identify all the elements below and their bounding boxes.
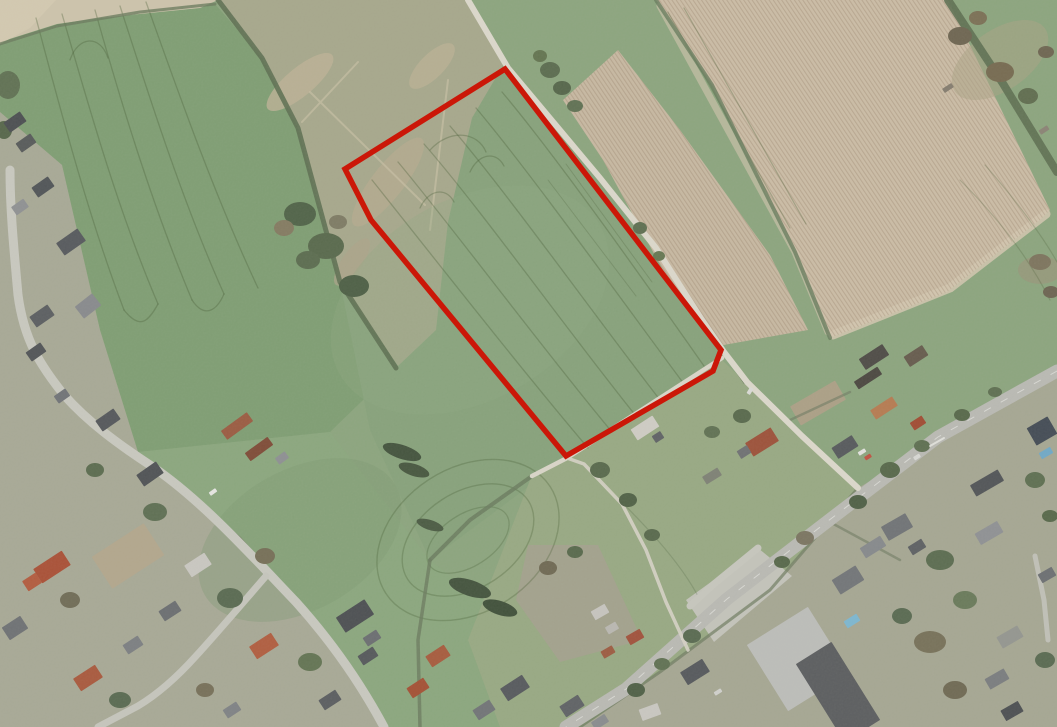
screenshot-root (0, 0, 1057, 727)
photo-grain (0, 0, 1057, 727)
aerial-map-canvas[interactable] (0, 0, 1057, 727)
